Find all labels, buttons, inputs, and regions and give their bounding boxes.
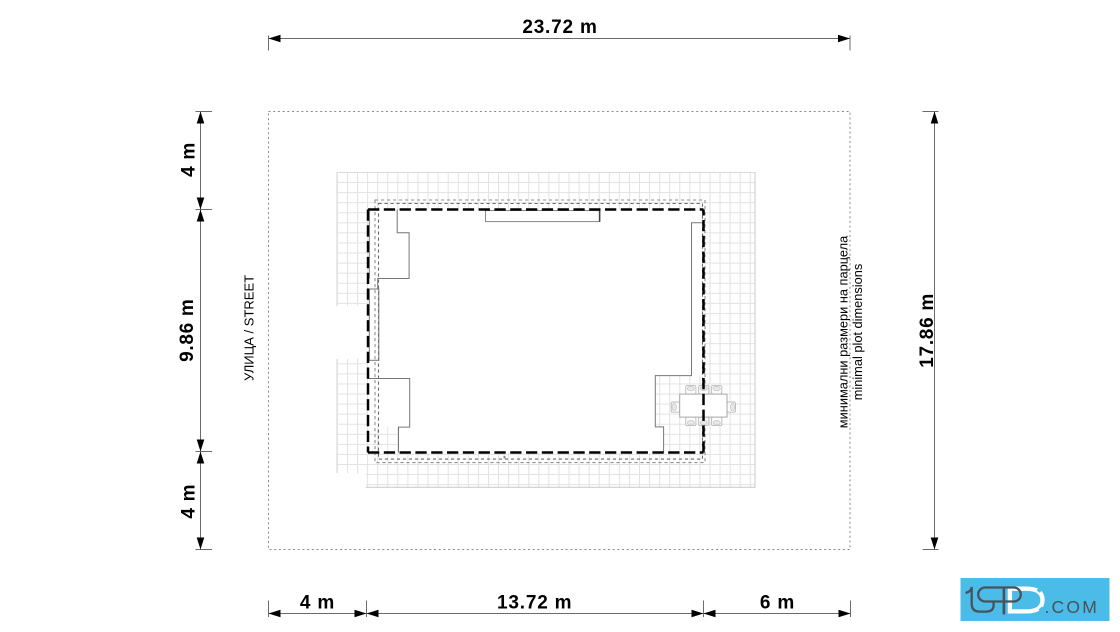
svg-text:17.86 m: 17.86 m xyxy=(917,293,938,368)
svg-text:6 m: 6 m xyxy=(760,593,795,614)
svg-text:23.72 m: 23.72 m xyxy=(522,17,597,38)
svg-text:minimal plot dimensions: minimal plot dimensions xyxy=(850,264,865,401)
svg-text:минимални размери на парцела: минимални размери на парцела xyxy=(836,235,851,428)
svg-text:УЛИЦА / STREET: УЛИЦА / STREET xyxy=(242,275,257,381)
svg-text:9.86 m: 9.86 m xyxy=(177,299,198,362)
svg-text:4 m: 4 m xyxy=(179,142,200,177)
svg-text:4 m: 4 m xyxy=(300,593,335,614)
svg-text:13.72 m: 13.72 m xyxy=(497,593,572,614)
svg-text:.COM: .COM xyxy=(1045,597,1100,617)
svg-text:4 m: 4 m xyxy=(179,484,200,519)
